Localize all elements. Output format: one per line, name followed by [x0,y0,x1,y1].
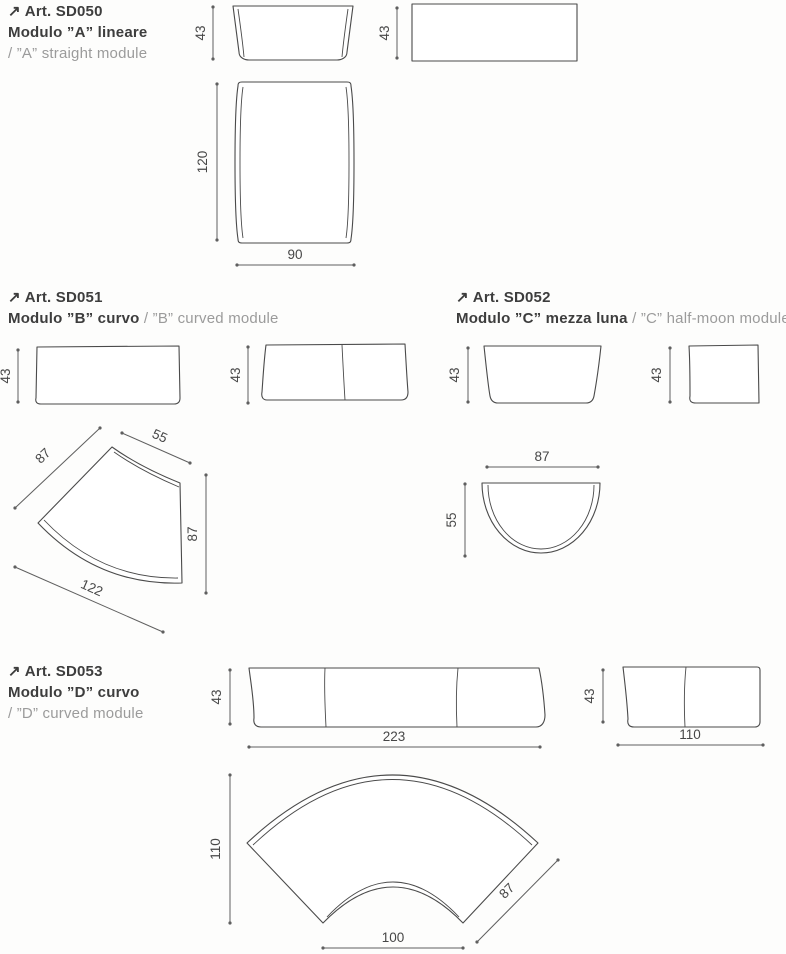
drawing-sd053: 43 223 43 110 110 87 100 [208,667,763,948]
dim-label-sd053-side-height: 43 [582,688,597,703]
article-header-sd052: ↗Art. SD052 Modulo ”C” mezza luna / ”C” … [456,287,786,329]
north-east-arrow-icon: ↗ [456,289,469,306]
article-title-italian: Modulo ”B” curvo [8,310,140,327]
drawing-sd050: 43 43 120 90 [193,4,577,265]
dim-label-sd050-side-height: 43 [377,25,392,40]
dim-label-sd051-fan-back: 87 [32,445,53,466]
sd052-side-view [689,345,759,403]
article-title-english: / ”A” straight module [8,43,147,64]
article-header-sd053: ↗Art. SD053 Modulo ”D” curvo / ”D” curve… [8,661,144,724]
north-east-arrow-icon: ↗ [8,3,21,20]
sd051-side-view [36,346,180,404]
dim-label-sd052-front-height: 43 [447,367,462,382]
article-code: ↗Art. SD053 [8,661,144,682]
sd053-side-view [623,667,760,727]
sd050-side-view [412,4,577,61]
dim-label-sd052-plan-depth: 55 [444,512,459,527]
sd053-front-view [249,668,545,727]
sd050-front-view [233,6,353,60]
dim-label-sd050-plan-width: 90 [287,247,302,262]
sd052-plan-view [482,483,600,553]
dim-label-sd052-plan-width: 87 [534,449,549,464]
dim-label-sd051-side-height: 43 [0,368,13,383]
article-title-english: / ”C” half-moon module [632,310,786,327]
article-title-italian: Modulo ”C” mezza luna [456,310,628,327]
article-header-sd051: ↗Art. SD051 Modulo ”B” curvo / ”B” curve… [8,287,279,329]
article-title-italian: Modulo ”A” lineare [8,22,147,43]
article-code: ↗Art. SD050 [8,1,147,22]
dim-label-sd053-front-height: 43 [209,689,224,704]
dim-label-sd052-side-height: 43 [649,367,664,382]
dim-label-sd051-fan-side: 87 [185,526,200,541]
dim-label-sd051-fan-outer: 122 [78,576,105,599]
drawing-sd051: 43 43 87 55 87 122 [0,344,408,632]
sd050-plan-view [235,82,354,243]
dim-label-sd053-front-width: 223 [383,729,406,744]
sd051-plan-view [38,447,182,583]
dim-label-sd051-fan-inner: 55 [150,426,170,446]
sd051-front-view [262,344,408,400]
article-title-italian: Modulo ”D” curvo [8,682,144,703]
dim-label-sd053-fan-inner: 100 [382,930,405,945]
spec-sheet: 43 43 120 90 43 43 87 55 87 [0,0,786,954]
article-code: ↗Art. SD052 [456,287,786,308]
dim-label-sd050-plan-depth: 120 [195,151,210,174]
technical-drawings: 43 43 120 90 43 43 87 55 87 [0,0,786,954]
article-title-english: / ”D” curved module [8,703,144,724]
sd053-plan-view [247,775,538,923]
north-east-arrow-icon: ↗ [8,289,21,306]
dim-label-sd050-front-height: 43 [193,25,208,40]
sd052-front-view [484,346,601,403]
article-code: ↗Art. SD051 [8,287,279,308]
dim-label-sd051-front-height: 43 [228,367,243,382]
article-title-english: / ”B” curved module [144,310,279,327]
north-east-arrow-icon: ↗ [8,663,21,680]
dim-label-sd053-fan-height: 110 [208,838,223,860]
dim-label-sd053-side-width: 110 [679,727,701,742]
drawing-sd052: 43 43 87 55 [444,345,759,556]
article-header-sd050: ↗Art. SD050 Modulo ”A” lineare / ”A” str… [8,1,147,64]
